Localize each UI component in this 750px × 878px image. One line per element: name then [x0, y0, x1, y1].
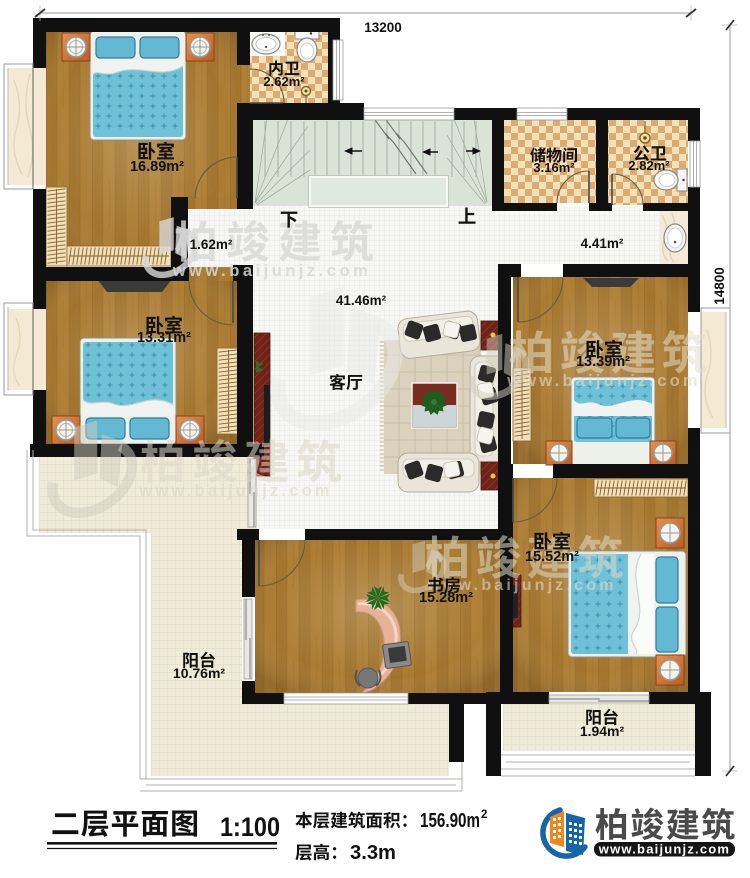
svg-text:14800: 14800	[712, 267, 727, 305]
svg-text:13.39m²: 13.39m²	[576, 354, 630, 370]
svg-text:16.89m²: 16.89m²	[130, 159, 184, 175]
svg-text:41.46m²: 41.46m²	[336, 293, 387, 308]
svg-text:3.16m²: 3.16m²	[533, 160, 575, 175]
svg-text:10.76m²: 10.76m²	[173, 665, 225, 681]
svg-text:www.baijunjz.com: www.baijunjz.com	[506, 372, 701, 390]
svg-text:2: 2	[481, 809, 487, 821]
svg-text:13200: 13200	[364, 20, 402, 35]
svg-text:www.baijunjz.com: www.baijunjz.com	[172, 262, 371, 280]
svg-text:1:100: 1:100	[220, 812, 280, 842]
svg-text:156.90m: 156.90m	[420, 810, 480, 832]
svg-text:1.62m²: 1.62m²	[190, 237, 233, 252]
svg-text:13.31m²: 13.31m²	[137, 330, 191, 346]
svg-text:15.28m²: 15.28m²	[419, 590, 473, 606]
svg-text:2.62m²: 2.62m²	[263, 74, 305, 89]
svg-text:4.41m²: 4.41m²	[581, 236, 624, 251]
svg-text:1.94m²: 1.94m²	[580, 723, 625, 739]
svg-text:3.3m: 3.3m	[350, 842, 396, 864]
svg-text:2.82m²: 2.82m²	[628, 158, 670, 173]
svg-text:15.52m²: 15.52m²	[525, 549, 579, 565]
svg-text:www.baijunjz.com: www.baijunjz.com	[598, 842, 730, 857]
svg-text:www.baijunjz.com: www.baijunjz.com	[138, 482, 333, 500]
